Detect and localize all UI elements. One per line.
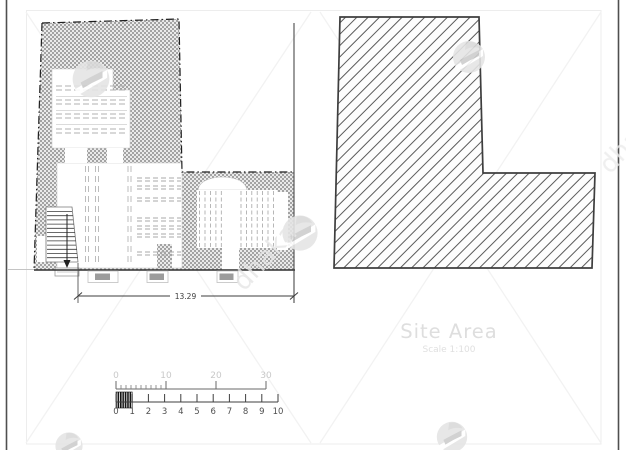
meter-label-8: 8	[243, 407, 248, 417]
feet-label-10: 10	[160, 371, 172, 381]
footing-2	[147, 271, 168, 283]
meter-label-1: 1	[129, 407, 134, 417]
feet-label-0: 0	[113, 371, 119, 381]
meter-label-4: 4	[178, 407, 183, 417]
door-gap-1	[65, 148, 87, 163]
drawing-page: 13.29 dhaka dhaka Site Area Scale 1:100 …	[0, 0, 626, 450]
meter-label-6: 6	[210, 407, 215, 417]
footing-1	[88, 271, 118, 283]
watermark-logo-icon	[453, 41, 485, 73]
site-plan-drawing: 13.29 dhaka dhaka Site Area Scale 1:100 …	[0, 0, 626, 450]
meter-label-2: 2	[146, 407, 151, 417]
feet-label-30: 30	[260, 371, 272, 381]
dimension-label: 13.29	[175, 292, 197, 301]
left-notch	[37, 236, 47, 262]
scale-filled-block	[116, 392, 132, 408]
site-area-title: Site Area	[400, 320, 498, 343]
door-gap-2	[107, 148, 123, 163]
meter-label-7: 7	[227, 407, 232, 417]
meter-label-5: 5	[194, 407, 199, 417]
site-area-scale-note: Scale 1:100	[422, 345, 475, 355]
feet-label-20: 20	[210, 371, 222, 381]
meter-label-10: 10	[273, 407, 284, 417]
meter-label-3: 3	[162, 407, 167, 417]
watermark-logo-icon	[73, 61, 110, 98]
pillar-1	[157, 244, 172, 268]
meter-label-9: 9	[259, 407, 264, 417]
meter-label-0: 0	[113, 407, 118, 417]
pillar-2	[183, 215, 197, 250]
